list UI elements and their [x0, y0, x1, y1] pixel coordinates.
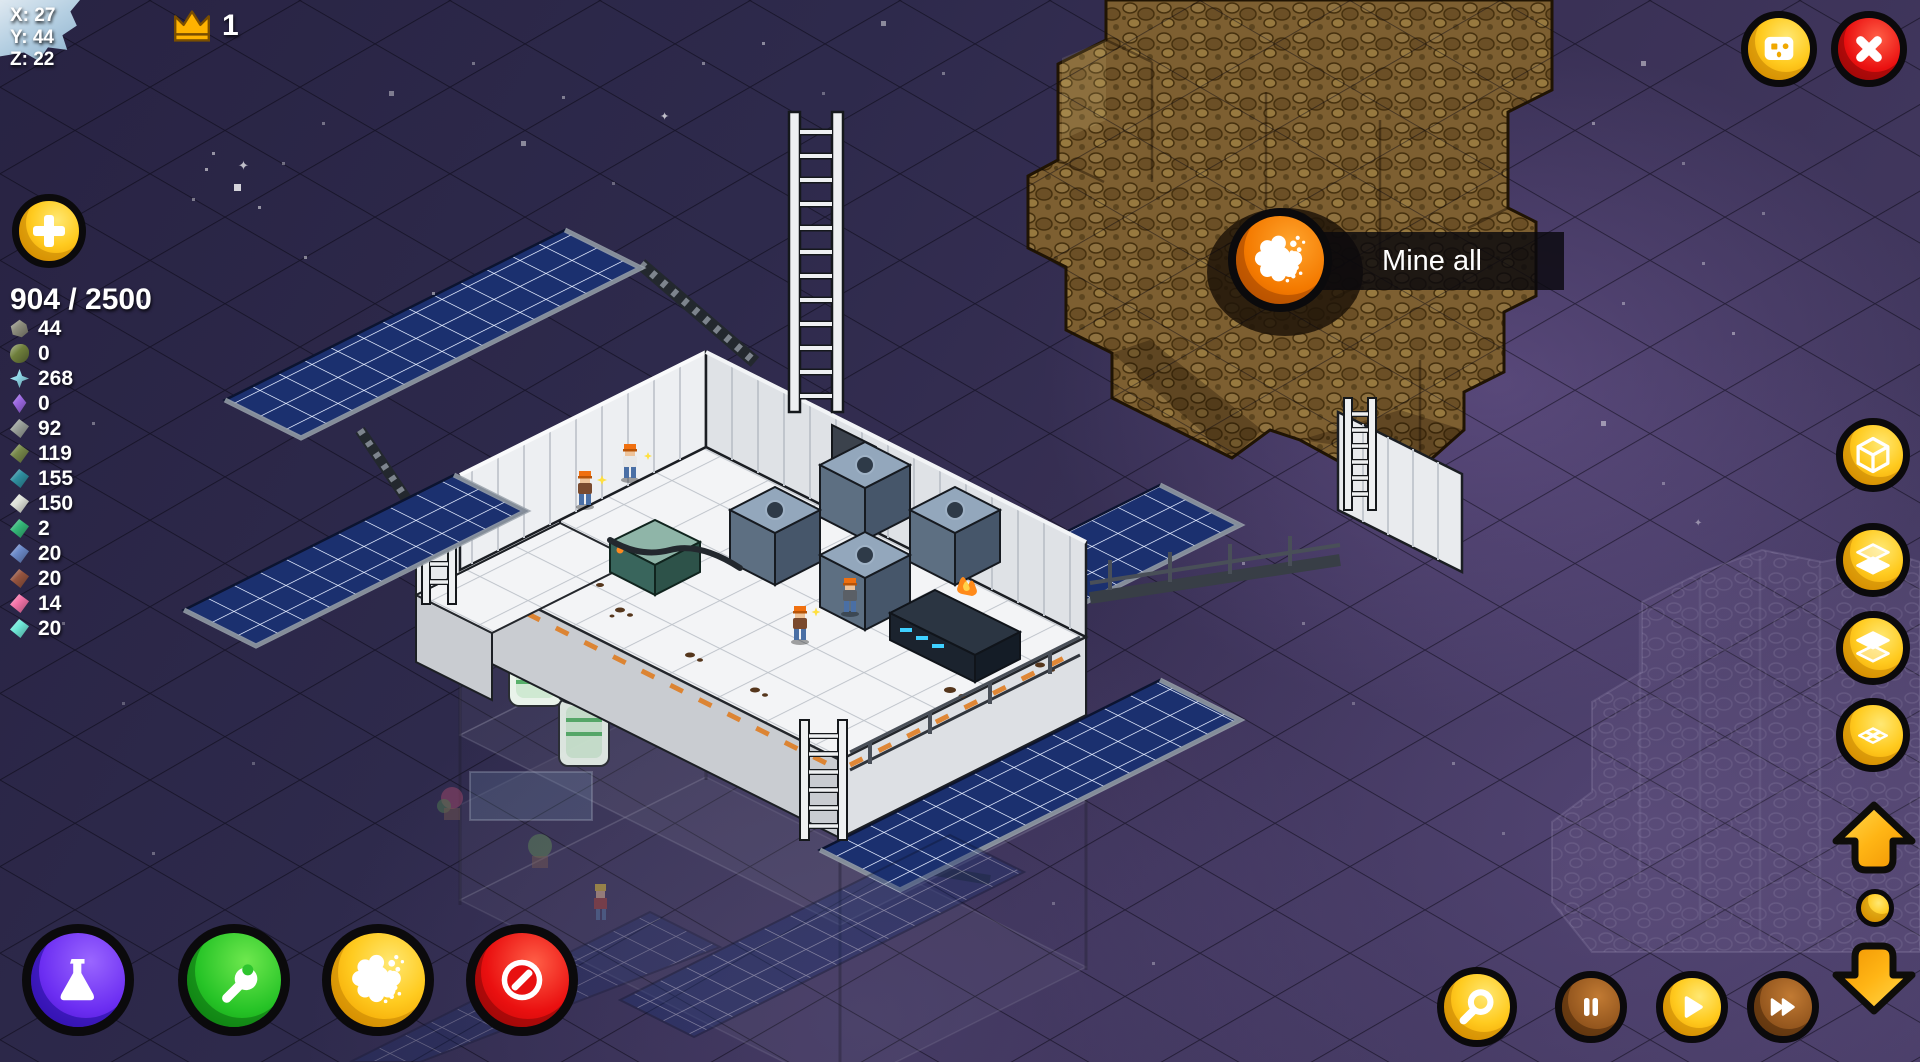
resource-row: 44: [10, 316, 73, 341]
storage-capacity: 904 / 2500: [10, 283, 152, 317]
wrench-icon: [205, 951, 263, 1009]
grid-view-button[interactable]: [1836, 698, 1910, 772]
level-down-button[interactable]: [1830, 940, 1918, 1021]
research-button[interactable]: [22, 924, 134, 1036]
robot-face-icon: [1757, 27, 1801, 71]
resource-row: 20: [10, 616, 73, 641]
plate-resource-icon: [10, 519, 29, 538]
resource-count: 2: [38, 517, 50, 541]
pause-button[interactable]: [1555, 971, 1627, 1043]
resource-count: 150: [38, 492, 73, 516]
mine-mode-button[interactable]: [322, 924, 434, 1036]
flask-icon: [49, 951, 107, 1009]
plate-resource-icon: [10, 469, 29, 488]
close-x-icon: [1848, 28, 1890, 70]
resource-count: 0: [38, 342, 50, 366]
game-viewport[interactable]: { "hud": { "coordinates": { "x": "X: 27"…: [0, 0, 1920, 1062]
coordinate-z: Z: 22: [10, 49, 55, 71]
close-button[interactable]: [1831, 11, 1907, 87]
plate-resource-icon: [10, 444, 29, 463]
plate-resource-icon: [10, 419, 29, 438]
game-world-canvas[interactable]: [0, 0, 1920, 1062]
forbid-icon: [493, 951, 551, 1009]
pause-icon: [1571, 987, 1611, 1027]
resource-count: 92: [38, 417, 61, 441]
crown-counter: 1: [170, 8, 239, 44]
search-button[interactable]: [1437, 967, 1517, 1047]
resource-count: 268: [38, 367, 73, 391]
tooltip-label: Mine all: [1382, 245, 1482, 278]
crown-icon: [170, 8, 214, 44]
organic-resource-icon: [10, 344, 29, 363]
layer-above-icon: [1851, 538, 1895, 582]
resource-row: 14: [10, 591, 73, 616]
resource-count: 14: [38, 592, 61, 616]
resource-panel: 44 0 268 0 92 119 155 150 2 20 20 14 20: [10, 316, 73, 641]
resource-count: 119: [38, 442, 72, 466]
coordinate-x: X: 27: [10, 5, 55, 27]
cube-wireframe-icon: [1851, 433, 1895, 477]
grid-flat-icon: [1851, 713, 1895, 757]
resource-row: 20: [10, 541, 73, 566]
fast-forward-icon: [1763, 987, 1803, 1027]
plus-icon: [28, 210, 70, 252]
resource-row: 0: [10, 341, 73, 366]
crown-count: 1: [222, 9, 239, 43]
forbid-mode-button[interactable]: [466, 924, 578, 1036]
level-up-button[interactable]: [1830, 800, 1918, 881]
mine-splat-icon: [1251, 229, 1309, 291]
coordinate-y: Y: 44: [10, 27, 55, 49]
resource-row: 119: [10, 441, 73, 466]
play-button[interactable]: [1656, 971, 1728, 1043]
add-resource-button[interactable]: [12, 194, 86, 268]
mine-all-button[interactable]: [1228, 208, 1332, 312]
mine-splat-icon: [348, 948, 408, 1012]
resource-row: 20: [10, 566, 73, 591]
layer-below-button[interactable]: [1836, 611, 1910, 685]
resource-count: 20: [38, 617, 61, 641]
resource-count: 0: [38, 392, 50, 416]
purple-crystal-resource-icon: [10, 394, 29, 413]
plate-resource-icon: [10, 544, 29, 563]
plate-resource-icon: [10, 594, 29, 613]
magnifier-icon: [1455, 985, 1499, 1029]
rock-resource-icon: [10, 319, 29, 338]
resource-row: 150: [10, 491, 73, 516]
build-button[interactable]: [178, 924, 290, 1036]
arrow-up-icon: [1830, 800, 1918, 876]
resource-count: 44: [38, 317, 61, 341]
cursor-coordinates: X: 27 Y: 44 Z: 22: [10, 5, 55, 71]
resource-count: 20: [38, 567, 61, 591]
resource-row: 268: [10, 366, 73, 391]
resource-count: 20: [38, 542, 61, 566]
arrow-down-icon: [1830, 940, 1918, 1016]
resource-row: 155: [10, 466, 73, 491]
layer-below-icon: [1851, 626, 1895, 670]
resource-count: 155: [38, 467, 73, 491]
resource-row: 92: [10, 416, 73, 441]
resource-row: 0: [10, 391, 73, 416]
fast-forward-button[interactable]: [1747, 971, 1819, 1043]
layer-above-button[interactable]: [1836, 523, 1910, 597]
robot-menu-button[interactable]: [1741, 11, 1817, 87]
play-icon: [1672, 987, 1712, 1027]
plate-resource-icon: [10, 494, 29, 513]
plate-resource-icon: [10, 619, 29, 638]
resource-row: 2: [10, 516, 73, 541]
current-level-dot[interactable]: [1856, 889, 1894, 927]
view-cube-button[interactable]: [1836, 418, 1910, 492]
plate-resource-icon: [10, 569, 29, 588]
crystal-shard-resource-icon: [10, 369, 29, 388]
